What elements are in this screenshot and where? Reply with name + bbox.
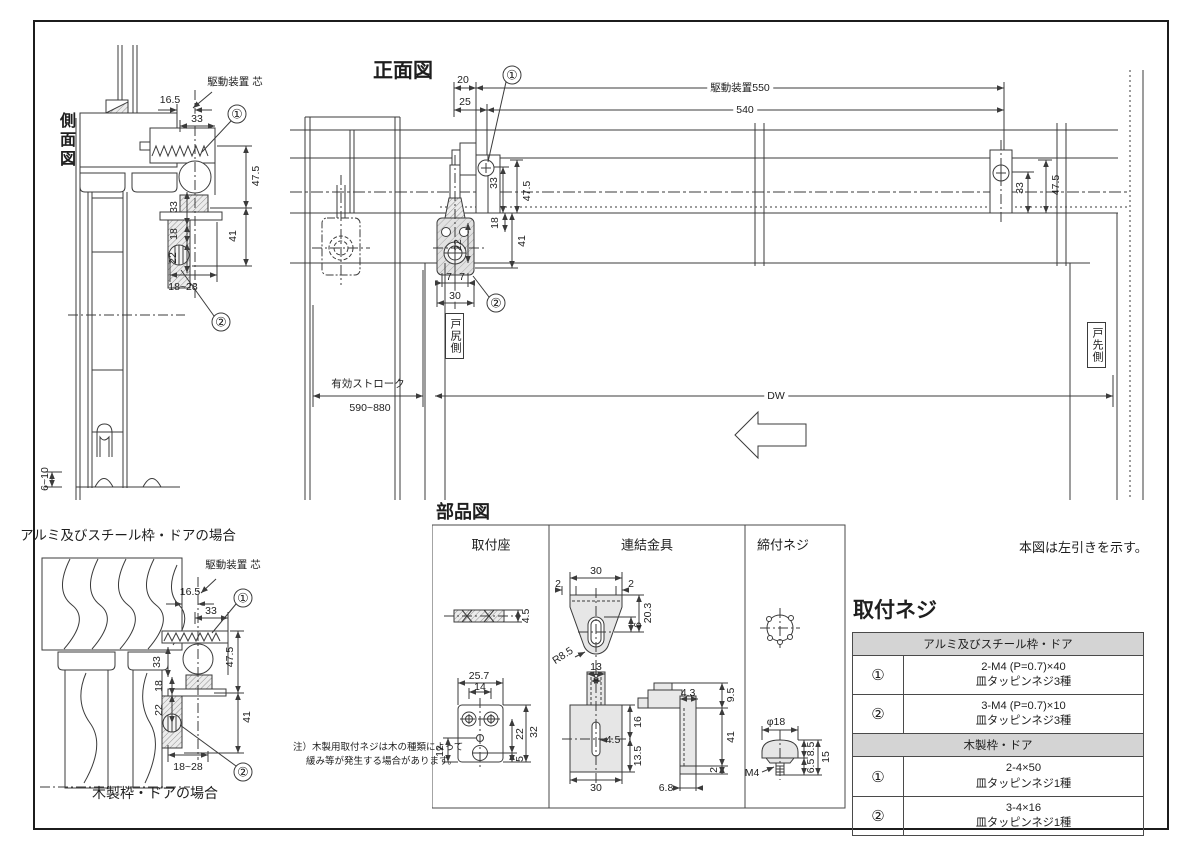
- dim-41: 41: [517, 235, 528, 247]
- callout-2: ②: [215, 316, 227, 329]
- front-view-title: 正面図: [373, 61, 433, 81]
- dim-4-3: 4.3: [681, 688, 696, 699]
- dim-16: 16: [633, 716, 644, 728]
- dim-5: 5: [515, 756, 526, 762]
- row-type: 皿タッピンネジ1種: [906, 777, 1141, 792]
- row-type: 皿タッピンネジ1種: [906, 816, 1141, 831]
- front-view: 正面図 20 25 駆動装置550 540 ① 33 47.5 18 22 41…: [290, 55, 1170, 505]
- dim-33-top: 33: [202, 606, 220, 617]
- dim-20: 20: [457, 75, 469, 86]
- dim-13: 13: [590, 662, 602, 673]
- dim-33-left: 33: [152, 656, 163, 668]
- page: 側面図: [0, 0, 1200, 848]
- callout-1: ①: [231, 108, 243, 121]
- callout-1: ①: [237, 592, 249, 605]
- dim-drive-550: 駆動装置550: [707, 83, 773, 94]
- dim-30: 30: [446, 291, 464, 302]
- table-title: 取付ネジ: [853, 594, 1152, 624]
- dim-8-5: 8.5: [806, 742, 817, 757]
- drive-axis-label: 駆動装置 芯: [207, 77, 262, 88]
- dim-4-5: 4.5: [521, 609, 532, 624]
- dim-25: 25: [459, 97, 471, 108]
- dim-dw: DW: [764, 391, 788, 402]
- row-callout: ①: [853, 757, 904, 796]
- table-section-header: 木製枠・ドア: [853, 734, 1144, 757]
- dim-540: 540: [733, 105, 757, 116]
- row-spec: 3-4×16: [906, 801, 1141, 816]
- dim-47-5: 47.5: [251, 166, 262, 186]
- mounting-screw-table: 取付ネジ アルミ及びスチール枠・ドア ① 2-M4 (P=0.7)×40 皿タッ…: [852, 594, 1152, 836]
- dim-41: 41: [726, 731, 737, 743]
- stroke-label: 有効ストローク: [331, 379, 405, 390]
- dim-41: 41: [242, 711, 253, 723]
- dim-47-5: 47.5: [225, 647, 236, 667]
- dim-7a: 7: [446, 272, 452, 283]
- table-row: ① 2-4×50 皿タッピンネジ1種: [853, 757, 1144, 796]
- wood-view-linework: [40, 555, 300, 805]
- side-view-caption: アルミ及びスチール枠・ドアの場合: [20, 524, 236, 544]
- callout-2: ②: [490, 297, 502, 310]
- dim-41: 41: [228, 230, 239, 242]
- dim-18-28: 18~28: [168, 282, 198, 293]
- row-callout: ②: [853, 796, 904, 835]
- drive-axis-label: 駆動装置 芯: [205, 560, 260, 571]
- dim-30-top: 30: [590, 566, 602, 577]
- dim-25-7: 25.7: [469, 671, 489, 682]
- parts-diagram: 部品図 取付座 連結金具 締付ネジ 4.5 25.7 14 22 32 12 5…: [432, 500, 847, 815]
- dim-16-5: 16.5: [160, 95, 180, 106]
- table-section-header: アルミ及びスチール枠・ドア: [853, 633, 1144, 656]
- panel-title-seat: 取付座: [471, 539, 510, 552]
- dim-33-left: 33: [169, 201, 180, 213]
- dim-2-right: 2: [628, 579, 634, 590]
- door-tail-label: 戸尻側: [445, 313, 464, 359]
- note-line-1: 注）木製用取付ネジは木の種類によって: [293, 741, 463, 755]
- dim-33-left: 33: [489, 177, 500, 189]
- row-spec: 2-M4 (P=0.7)×40: [906, 660, 1141, 675]
- dim-8: 8: [593, 673, 599, 684]
- dim-15: 15: [821, 751, 832, 763]
- wood-view: 駆動装置 芯 16.5 33 ① 47.5 41 33 18 22 18~28 …: [40, 555, 300, 805]
- dim-6-5: 6.5: [806, 759, 817, 774]
- dim-2-step: 2: [709, 767, 720, 773]
- side-view: 駆動装置 芯 16.5 33 ① 47.5 41 33 18 22 18~28 …: [40, 30, 280, 530]
- dim-phi-18: φ18: [767, 717, 786, 728]
- callout-2: ②: [237, 766, 249, 779]
- direction-note: 本図は左引きを示す。: [1019, 541, 1148, 554]
- row-type: 皿タッピンネジ3種: [906, 675, 1141, 690]
- dim-16-5: 16.5: [180, 587, 200, 598]
- table-row: ② 3-4×16 皿タッピンネジ1種: [853, 796, 1144, 835]
- dim-9-5: 9.5: [726, 688, 737, 703]
- dim-14: 14: [474, 682, 486, 693]
- dim-18: 18: [169, 228, 180, 240]
- table-row: ② 3-M4 (P=0.7)×10 皿タッピンネジ3種: [853, 695, 1144, 734]
- table-row: ① 2-M4 (P=0.7)×40 皿タッピンネジ3種: [853, 656, 1144, 695]
- note-line-2: 緩み等が発生する場合があります。: [293, 755, 463, 769]
- row-spec: 2-4×50: [906, 761, 1141, 776]
- dim-18-28: 18~28: [173, 762, 203, 773]
- dim-47-5-right: 47.5: [1051, 175, 1062, 195]
- dim-13-5: 13.5: [633, 746, 644, 766]
- dim-7b: 7: [459, 272, 465, 283]
- dim-18: 18: [154, 680, 165, 692]
- dim-22: 22: [453, 239, 464, 251]
- dim-4-5-slot: 4.5: [606, 735, 621, 746]
- screw-table: アルミ及びスチール枠・ドア ① 2-M4 (P=0.7)×40 皿タッピンネジ3…: [852, 632, 1144, 836]
- panel-title-screw: 締付ネジ: [757, 539, 809, 552]
- row-type: 皿タッピンネジ3種: [906, 714, 1141, 729]
- stroke-value: 590~880: [349, 403, 390, 414]
- dim-33-right: 33: [1015, 182, 1026, 194]
- wood-view-caption: 木製枠・ドアの場合: [92, 783, 218, 803]
- dim-6-10: 6~10: [40, 467, 51, 491]
- dim-30-bottom: 30: [590, 783, 602, 794]
- front-view-linework: [290, 55, 1170, 505]
- dim-22: 22: [154, 704, 165, 716]
- dim-47-5-left: 47.5: [522, 181, 533, 201]
- row-callout: ②: [853, 695, 904, 734]
- door-front-label: 戸先側: [1087, 322, 1106, 368]
- row-spec: 3-M4 (P=0.7)×10: [906, 699, 1141, 714]
- dim-6-8: 6.8: [659, 783, 674, 794]
- wood-screw-note: 注）木製用取付ネジは木の種類によって 緩み等が発生する場合があります。: [293, 741, 463, 769]
- dim-20-3: 20.3: [643, 603, 654, 623]
- parts-title: 部品図: [436, 503, 490, 521]
- dim-22: 22: [168, 252, 179, 264]
- dim-22: 22: [515, 728, 526, 740]
- dim-32: 32: [529, 726, 540, 738]
- dim-33-top: 33: [188, 114, 206, 125]
- dim-6: 6: [633, 622, 644, 628]
- panel-title-connector: 連結金具: [621, 539, 673, 552]
- dim-2-left: 2: [555, 579, 561, 590]
- dim-m4: M4: [745, 768, 760, 779]
- callout-1: ①: [506, 69, 518, 82]
- row-callout: ①: [853, 656, 904, 695]
- dim-18: 18: [490, 217, 501, 229]
